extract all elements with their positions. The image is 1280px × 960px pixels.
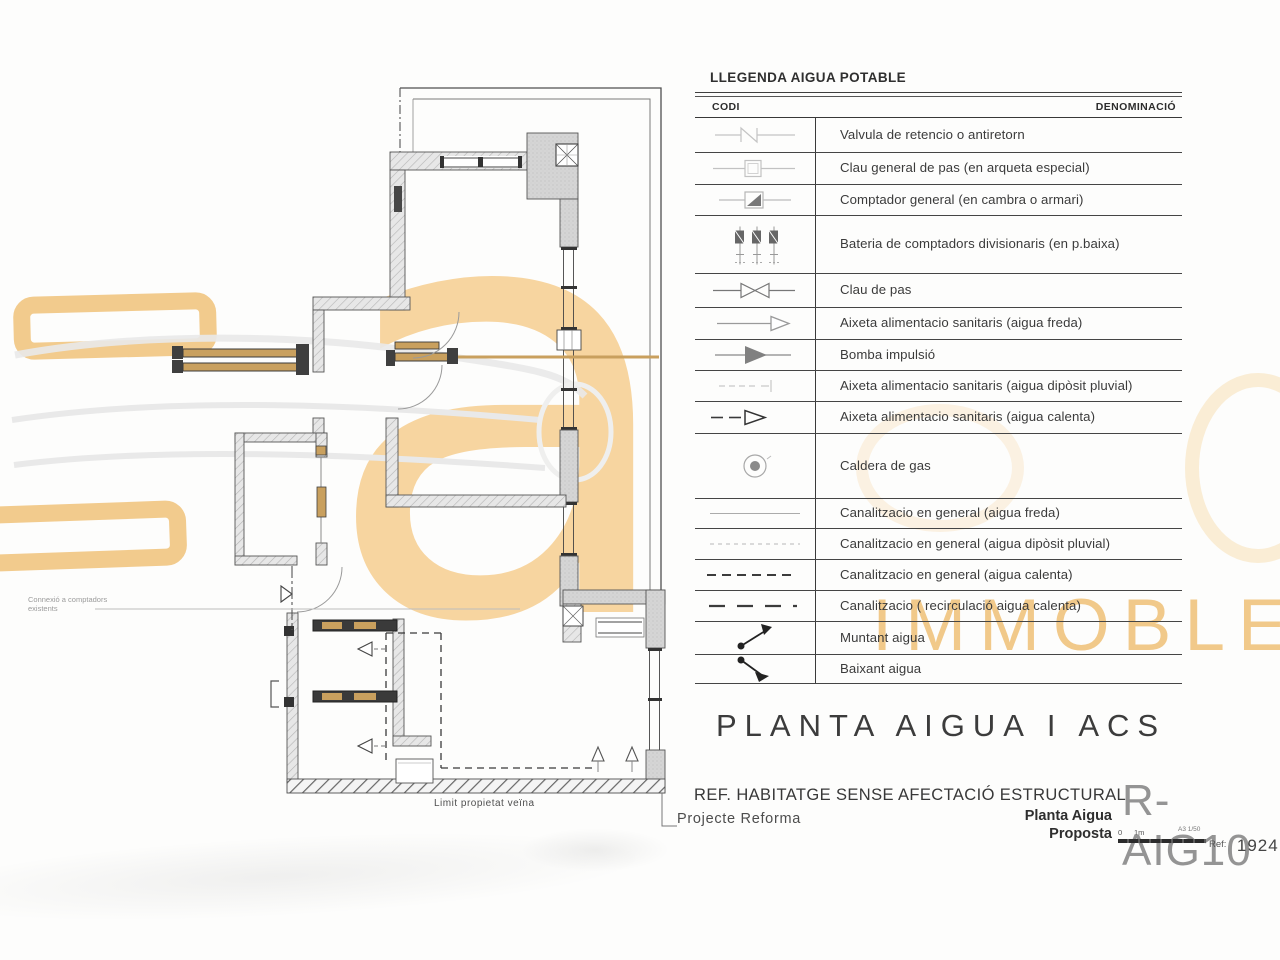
scale-unit-label: 1m — [1134, 828, 1144, 837]
tap-rain-water-icon — [695, 371, 816, 401]
tap-cold-water-icon — [695, 308, 816, 339]
legend-title: LLEGENDA AIGUA POTABLE — [710, 70, 1182, 85]
legend-row-label: Canalitzacio en general (aigua dipòsit p… — [816, 529, 1182, 559]
legend-row: Canalitzacio en general (aigua calenta) — [695, 560, 1182, 591]
annotation-connexio-line2: existents — [28, 604, 58, 613]
scale-zero-label: 0 — [1118, 828, 1122, 837]
meter-battery-icon — [695, 216, 816, 273]
general-shutoff-valve-icon — [695, 153, 816, 184]
legend-row: Comptador general (en cambra o armari) — [695, 185, 1182, 216]
riser-up-arrow-icon — [695, 622, 816, 654]
legend-row-label: Aixeta alimentacio sanitaris (aigua fred… — [816, 308, 1182, 339]
legend-row: Aixeta alimentacio sanitaris (aigua dipò… — [695, 371, 1182, 402]
sheet-name-planta-aigua: Planta Aigua — [940, 808, 1112, 824]
flow-arrows — [281, 586, 638, 772]
pipe-recirculation-icon — [695, 591, 816, 621]
drawing-code: R-AIG10 — [1122, 776, 1280, 876]
legend-row-label: Bomba impulsió — [816, 340, 1182, 370]
legend-row-label: Caldera de gas — [816, 434, 1182, 498]
legend-row: Aixeta alimentacio sanitaris (aigua fred… — [695, 308, 1182, 340]
legend-row: Bateria de comptadors divisionaris (en p… — [695, 216, 1182, 274]
sheet-ref-line: REF. HABITATGE SENSE AFECTACIÓ ESTRUCTUR… — [694, 786, 1126, 805]
legend-row: Canalitzacio en general (aigua freda) — [695, 499, 1182, 529]
legend-row-label: Bateria de comptadors divisionaris (en p… — [816, 216, 1182, 273]
shutoff-valve-icon — [695, 274, 816, 307]
legend-row: Canalitzacio ( recirculació aigua calent… — [695, 591, 1182, 622]
legend-row-label: Aixeta alimentacio sanitaris (aigua dipò… — [816, 371, 1182, 401]
legend-row: Canalitzacio en general (aigua dipòsit p… — [695, 529, 1182, 560]
legend-row-label: Canalitzacio en general (aigua freda) — [816, 499, 1182, 528]
annotation-property-limit: Limit propietat veïna — [434, 798, 535, 809]
pipe-cold-water-icon — [695, 499, 816, 528]
gas-boiler-icon — [695, 434, 816, 498]
riser-down-arrow-icon — [695, 655, 816, 683]
legend-row: Baixant aigua — [695, 655, 1182, 684]
impulsion-pump-icon — [695, 340, 816, 370]
legend-row-label: Canalitzacio en general (aigua calenta) — [816, 560, 1182, 590]
legend-row-label: Valvula de retencio o antiretorn — [816, 118, 1182, 152]
legend-row: Valvula de retencio o antiretorn — [695, 118, 1182, 153]
legend-row-label: Clau general de pas (en arqueta especial… — [816, 153, 1182, 184]
ref-label: Ref: — [1209, 839, 1226, 850]
drawing-sheet: a IMMOBLE — [0, 0, 1280, 960]
scale-sheet-note: A3 1/50 — [1178, 826, 1200, 833]
tap-hot-water-icon — [695, 402, 816, 433]
legend-row: Aixeta alimentacio sanitaris (aigua cale… — [695, 402, 1182, 434]
legend-row-label: Muntant aigua — [816, 622, 1182, 654]
scale-bar-graphic — [1118, 839, 1206, 843]
pipe-rain-water-icon — [695, 529, 816, 559]
ref-number: 1924 — [1237, 836, 1279, 856]
legend-col-codi: CODI — [712, 101, 740, 113]
legend-row: Muntant aigua — [695, 622, 1182, 655]
walls — [235, 133, 665, 793]
legend-header: CODI DENOMINACIÓ — [695, 97, 1182, 118]
check-valve-icon — [695, 118, 816, 152]
legend-row-label: Clau de pas — [816, 274, 1182, 307]
legend-row-label: Baixant aigua — [816, 655, 1182, 683]
reference-block: Ref: 1924 — [1209, 836, 1279, 856]
sheet-name-proposta: Proposta — [940, 826, 1112, 842]
legend-col-denominacio: DENOMINACIÓ — [1096, 101, 1176, 113]
legend-row: Clau general de pas (en arqueta especial… — [695, 153, 1182, 185]
legend-row-label: Aixeta alimentacio sanitaris (aigua cale… — [816, 402, 1182, 433]
legend-rows: Valvula de retencio o antiretornClau gen… — [695, 118, 1182, 684]
sheet-title: PLANTA AIGUA I ACS — [716, 708, 1166, 744]
legend-aigua-potable: LLEGENDA AIGUA POTABLE CODI DENOMINACIÓ … — [695, 70, 1182, 684]
legend-row: Clau de pas — [695, 274, 1182, 308]
water-pipes — [172, 342, 659, 702]
pipe-hot-water-icon — [695, 560, 816, 590]
legend-row-label: Comptador general (en cambra o armari) — [816, 185, 1182, 215]
legend-row: Bomba impulsió — [695, 340, 1182, 371]
dashed-pipe-routes — [374, 633, 592, 768]
annotation-connexio-line1: Connexió a comptadors — [28, 595, 107, 604]
general-meter-icon — [695, 185, 816, 215]
project-name: Projecte Reforma — [677, 811, 801, 827]
legend-row-label: Canalitzacio ( recirculació aigua calent… — [816, 591, 1182, 621]
legend-row: Caldera de gas — [695, 434, 1182, 499]
